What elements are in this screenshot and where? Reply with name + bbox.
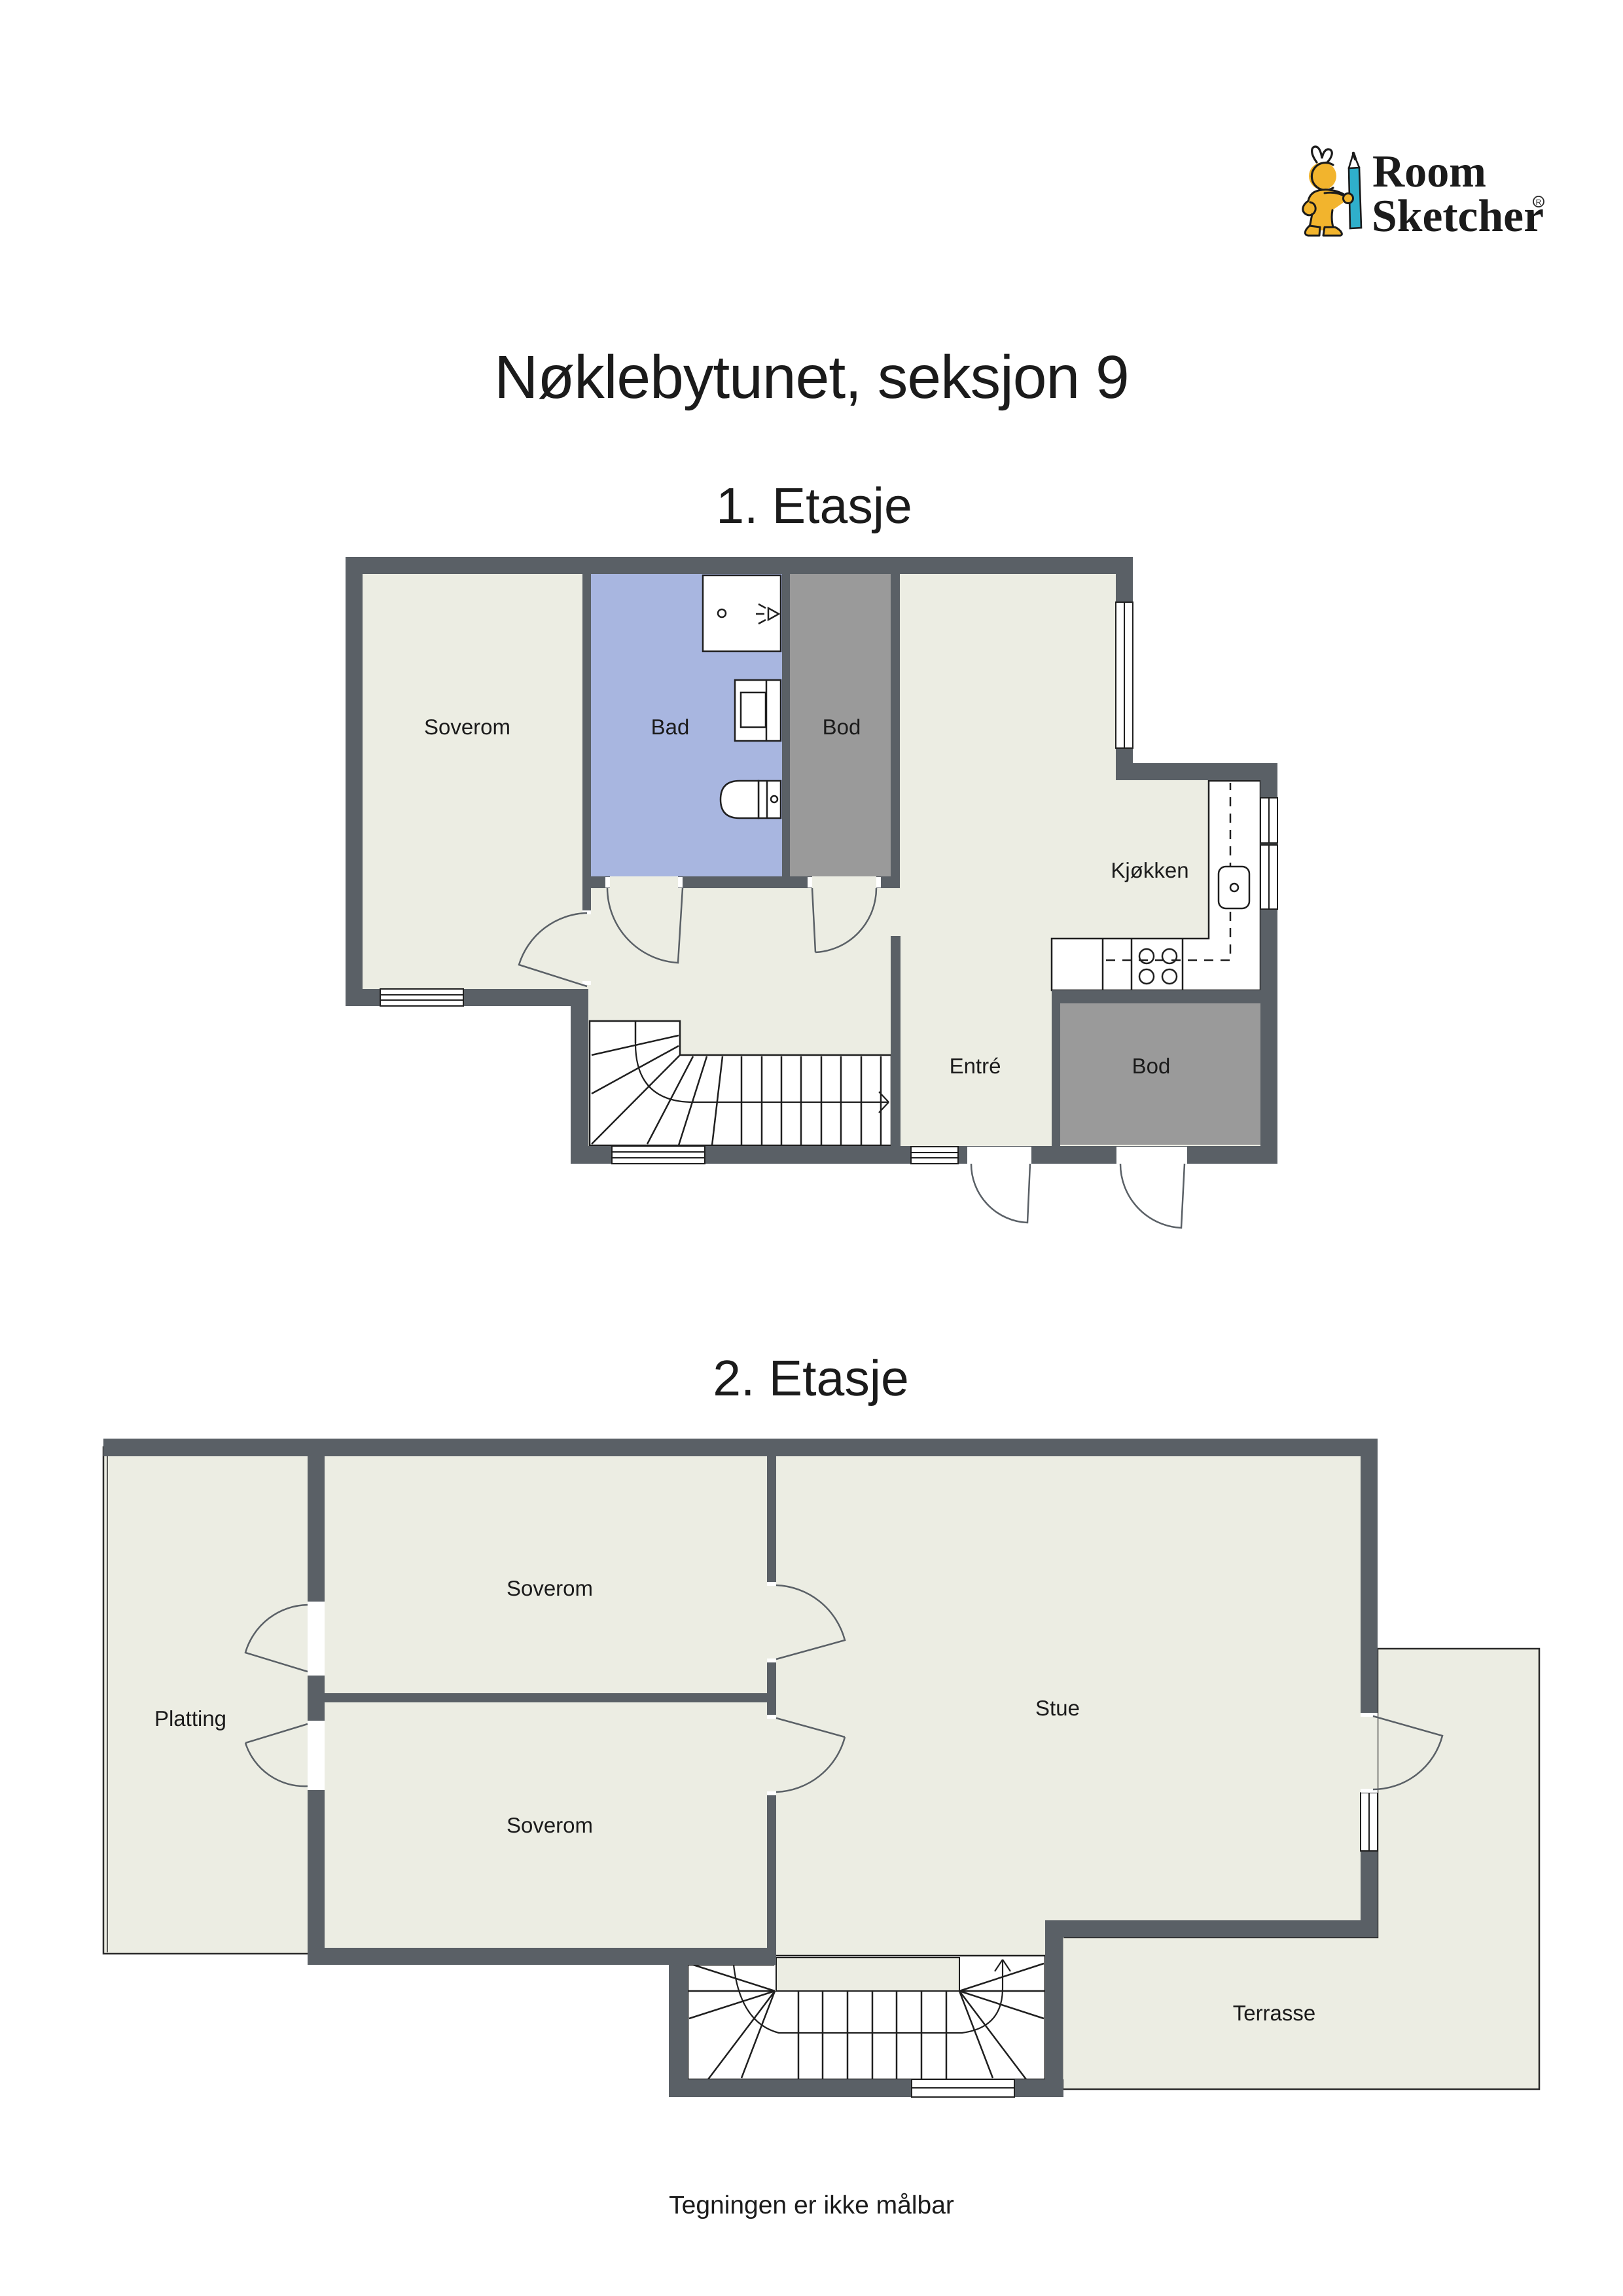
svg-text:Soverom: Soverom: [424, 715, 510, 739]
svg-text:Bod: Bod: [823, 715, 861, 739]
svg-text:Room: Room: [1372, 147, 1486, 197]
svg-text:R: R: [1536, 198, 1542, 207]
svg-text:1. Etasje: 1. Etasje: [716, 478, 912, 534]
svg-text:Soverom: Soverom: [507, 1813, 593, 1837]
svg-text:2. Etasje: 2. Etasje: [713, 1350, 909, 1407]
svg-text:Platting: Platting: [154, 1706, 226, 1731]
svg-text:Bod: Bod: [1132, 1054, 1171, 1078]
svg-text:Kjøkken: Kjøkken: [1111, 858, 1188, 882]
svg-text:Terrasse: Terrasse: [1233, 2001, 1316, 2025]
svg-text:Entré: Entré: [950, 1054, 1001, 1078]
svg-text:Bad: Bad: [651, 715, 690, 739]
svg-text:Sketcher: Sketcher: [1372, 191, 1544, 242]
svg-text:Tegningen er ikke målbar: Tegningen er ikke målbar: [669, 2191, 954, 2219]
svg-text:Nøklebytunet, seksjon 9: Nøklebytunet, seksjon 9: [494, 343, 1128, 411]
svg-text:Soverom: Soverom: [507, 1576, 593, 1600]
svg-text:Stue: Stue: [1035, 1696, 1080, 1720]
